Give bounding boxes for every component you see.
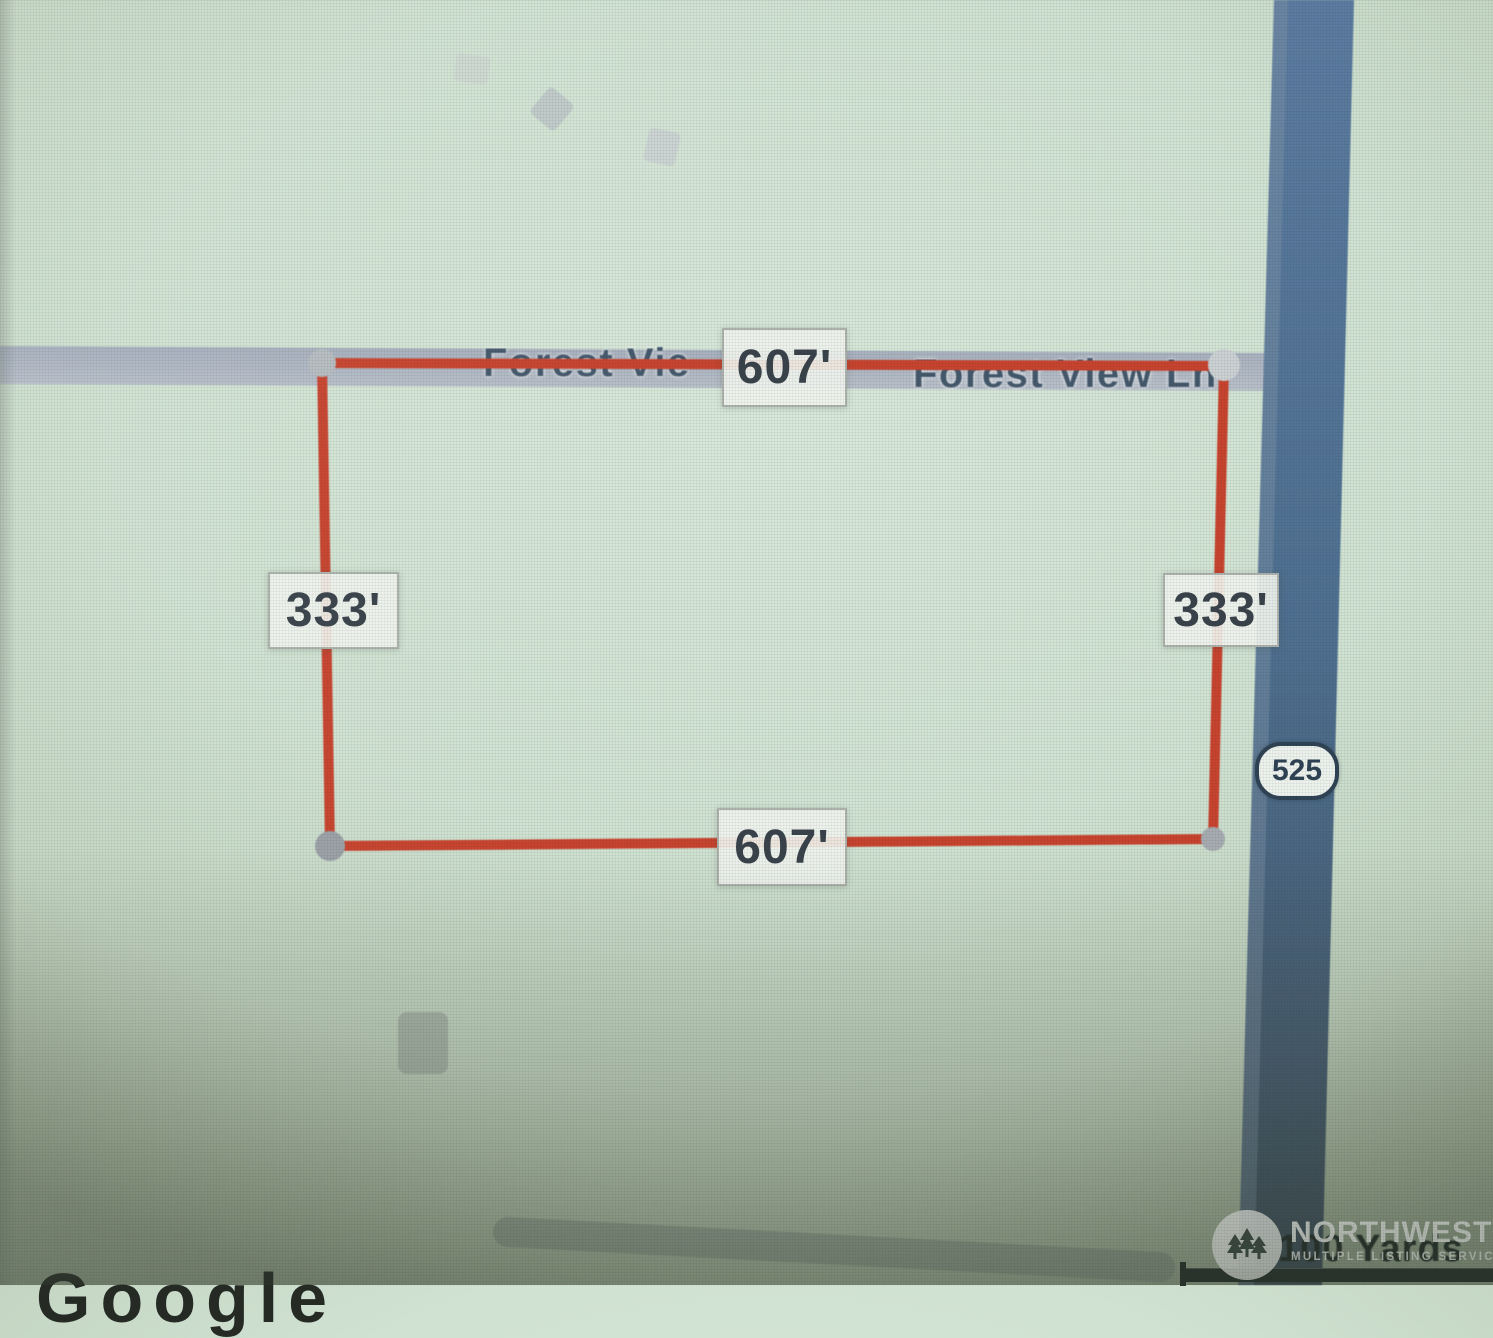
evergreen-trees-icon: [1225, 1227, 1269, 1263]
dimension-value: 333': [286, 583, 382, 638]
dimension-value: 607': [737, 340, 833, 395]
map-attribution: Google: [36, 1258, 337, 1338]
dimension-value: 607': [734, 820, 830, 875]
dimension-value: 333': [1173, 583, 1269, 638]
dimension-label-right: 333': [1163, 573, 1279, 647]
parcel-boundary: [322, 363, 1224, 846]
parcel-corner-ne: [1208, 349, 1240, 381]
watermark-title: NORTHWEST: [1290, 1216, 1492, 1250]
map-viewport[interactable]: Forest Vie Forest View Ln 607' 333' 333'…: [0, 0, 1493, 1285]
watermark-logo-badge: [1212, 1210, 1282, 1280]
parcel-corner-nw: [308, 349, 336, 377]
dimension-label-top: 607': [722, 328, 847, 407]
highway-shield-525: 525: [1255, 742, 1339, 800]
dimension-label-bottom: 607': [717, 808, 847, 886]
parcel-corner-sw: [315, 831, 345, 861]
scale-bar-endcap: [1180, 1262, 1186, 1286]
dimension-label-left: 333': [268, 572, 399, 649]
parcel-corner-se: [1201, 827, 1225, 851]
watermark-subtitle: MULTIPLE LISTING SERVICE: [1291, 1251, 1493, 1263]
